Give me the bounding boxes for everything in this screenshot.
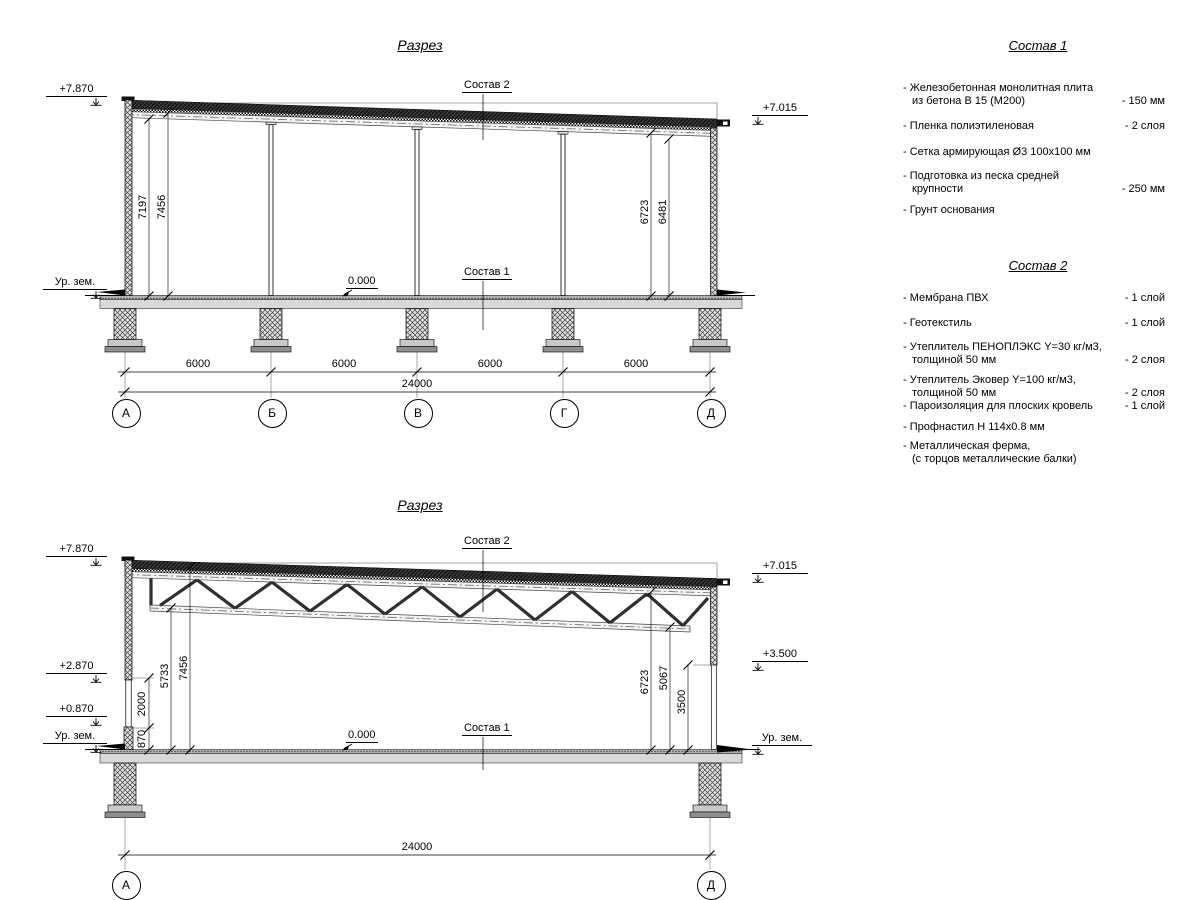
axis-bubble: Г — [550, 399, 579, 428]
composition-item-value: - 1 слой — [1119, 292, 1165, 305]
dimension-label: 5067 — [658, 666, 670, 690]
elevation-label: +7.870 — [46, 83, 107, 97]
total-dim-label: 24000 — [394, 378, 440, 390]
elevation-label: +7.870 — [46, 543, 107, 557]
elevation-label: +7.015 — [752, 560, 808, 574]
composition-item-value: - 150 мм — [1116, 95, 1165, 108]
composition-item-name: - Металлическая ферма, (с торцов металли… — [903, 440, 1077, 466]
composition-item-name: - Профнастил Н 114х0.8 мм — [903, 421, 1045, 434]
composition-item-name: - Утеплитель ПЕНОПЛЭКС Y=30 кг/м3, толщи… — [903, 341, 1102, 367]
ground-level-label: Ур. зем. — [752, 732, 812, 746]
composition1-callout: Состав 1 — [462, 722, 512, 736]
elevation-label: +7.015 — [752, 102, 808, 116]
composition2-callout: Состав 2 — [462, 79, 512, 93]
zero-level-label: 0.000 — [346, 275, 378, 289]
composition-item: - Сетка армирующая Ø3 100х100 мм — [903, 146, 1165, 159]
composition-item: - Геотекстиль - 1 слой — [903, 317, 1165, 330]
composition-item-name: - Пленка полиэтиленовая — [903, 120, 1034, 133]
axis-bubble: В — [404, 399, 433, 428]
composition-item: - Утеплитель Эковер Y=100 кг/м3, толщино… — [903, 374, 1165, 400]
composition-item: - Металлическая ферма, (с торцов металли… — [903, 440, 1165, 466]
composition1-title: Состав 1 — [998, 38, 1078, 53]
composition-item-name: - Пароизоляция для плоских кровель — [903, 400, 1093, 413]
composition-item-name: - Геотекстиль — [903, 317, 974, 330]
composition-item-name: - Железобетонная монолитная плита из бет… — [903, 82, 1093, 108]
zero-level-label: 0.000 — [346, 729, 378, 743]
section1-title: Разрез — [370, 37, 470, 53]
span-dim-label: 6000 — [324, 358, 364, 370]
composition2-title: Состав 2 — [998, 258, 1078, 273]
dimension-label: 2000 — [136, 692, 148, 716]
composition-item-name: - Сетка армирующая Ø3 100х100 мм — [903, 146, 1091, 159]
composition2-callout: Состав 2 — [462, 535, 512, 549]
blueprint-page: Разрез +7.870 Ур. зем. +7.015 Состав 2 С… — [0, 0, 1200, 900]
composition-item: - Подготовка из песка средней крупности … — [903, 170, 1165, 196]
dimension-label: 6723 — [639, 200, 651, 224]
composition-item-value: - 2 слоя — [1119, 120, 1165, 133]
dimension-label: 7456 — [156, 195, 168, 219]
section2-geometry — [85, 550, 764, 870]
dimension-label: 870 — [136, 730, 148, 748]
axis-bubble: Б — [258, 399, 287, 428]
dimension-label: 3500 — [676, 690, 688, 714]
elevation-label: +0.870 — [46, 703, 107, 717]
elevation-label: +2.870 — [46, 660, 107, 674]
composition-item-value: - 1 слой — [1119, 400, 1165, 413]
axis-bubble: Д — [697, 399, 726, 428]
dimension-label: 6481 — [657, 200, 669, 224]
composition1-callout: Состав 1 — [462, 266, 512, 280]
dimension-label: 7456 — [178, 656, 190, 680]
composition-item: - Пленка полиэтиленовая - 2 слоя — [903, 120, 1165, 133]
composition-item-value: - 2 слоя — [1119, 387, 1165, 400]
composition-item-name: - Подготовка из песка средней крупности — [903, 170, 1059, 196]
total-dim-label: 24000 — [394, 841, 440, 853]
composition-item: - Пароизоляция для плоских кровель - 1 с… — [903, 400, 1165, 413]
axis-bubble: А — [112, 871, 141, 900]
composition-item-value: - 250 мм — [1116, 183, 1165, 196]
dimension-label: 5733 — [159, 664, 171, 688]
composition-item: - Грунт основания — [903, 204, 1165, 217]
composition-item-name: - Мембрана ПВХ — [903, 292, 988, 305]
composition-item-value: - 1 слой — [1119, 317, 1165, 330]
composition-item-value: - 2 слоя — [1119, 354, 1165, 367]
elevation-label: +3.500 — [752, 648, 808, 662]
axis-bubble: А — [112, 399, 141, 428]
span-dim-label: 6000 — [178, 358, 218, 370]
section1-geometry — [85, 94, 764, 398]
ground-level-label: Ур. зем. — [43, 730, 107, 744]
dimension-label: 7197 — [137, 195, 149, 219]
dimension-label: 6723 — [639, 670, 651, 694]
composition-item-name: - Утеплитель Эковер Y=100 кг/м3, толщино… — [903, 374, 1076, 400]
span-dim-label: 6000 — [616, 358, 656, 370]
composition-item: - Профнастил Н 114х0.8 мм — [903, 421, 1165, 434]
span-dim-label: 6000 — [470, 358, 510, 370]
ground-level-label: Ур. зем. — [43, 276, 107, 290]
composition-item: - Утеплитель ПЕНОПЛЭКС Y=30 кг/м3, толщи… — [903, 341, 1165, 367]
section2-title: Разрез — [370, 497, 470, 513]
composition-item-name: - Грунт основания — [903, 204, 995, 217]
composition-item: - Железобетонная монолитная плита из бет… — [903, 82, 1165, 108]
composition-item: - Мембрана ПВХ - 1 слой — [903, 292, 1165, 305]
axis-bubble: Д — [697, 871, 726, 900]
